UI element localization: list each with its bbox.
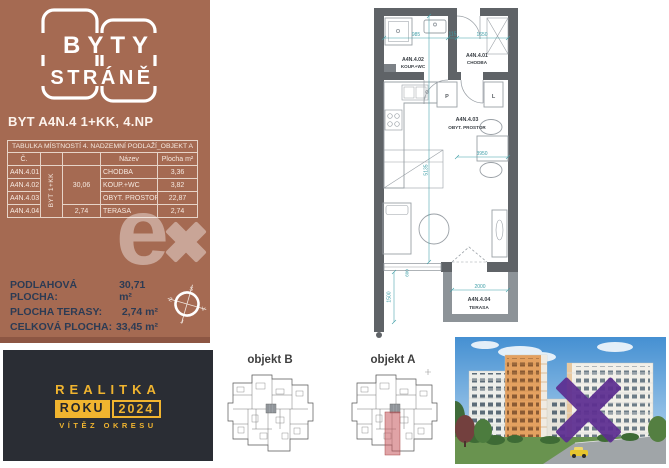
shower [385,18,412,45]
bathroom-door [424,80,448,104]
dim-1650: 1650 [476,32,487,38]
room-obytny-name: OBYT. PROSTOR [448,125,486,130]
stove [385,110,402,130]
logo-text-top: BYTY [63,32,155,59]
register-mark [425,369,431,375]
badge-line1: REALITKA [55,382,161,397]
room-terasa-id: A4N.4.04 [468,297,491,303]
room-chodba-id: A4N.4.01 [466,53,488,59]
objekt-a-label: objekt A [358,354,428,366]
badge-year: 2024 [112,400,162,418]
hall-closet [487,18,508,54]
objekt-b-plan [228,375,313,451]
highlighted-unit [385,412,400,455]
room-table-caption: TABULKA MÍSTNOSTÍ 4. NADZEMNÍ PODLAŽÍ_OB… [8,141,198,153]
wardrobe [492,210,507,257]
info-panel: BYTY STRÁNĚ BYT A4N.4 1+KK, 4.NP TABULKA… [0,0,210,343]
bed [383,203,411,254]
room-obytny-id: A4N.4.03 [456,117,479,123]
col-header-number: Č. [8,153,41,166]
realitka-roku-badge: REALITKA ROKU 2024 VÍTĚZ OKRESU [3,350,213,461]
byty-strane-logo: BYTY STRÁNĚ [36,5,166,107]
room-terasa-name: TERASA [469,305,489,311]
shaft [384,64,396,72]
chair [480,163,502,178]
apartment-title: BYT A4N.4 1+KK, 4.NP [8,114,153,129]
dim-115: 115 [449,32,457,38]
dim-2000: 2000 [474,284,485,290]
dim-5135: 5135 [424,164,430,175]
washbasin [424,20,446,33]
unit-label: BYT 1+KK [48,173,55,207]
dim-1500: 1500 [387,291,393,302]
washer-label: P [445,94,449,100]
badge-line2: ROKU 2024 [55,400,162,418]
dim-3950: 3950 [476,151,487,157]
logo-text-bottom: STRÁNĚ [50,65,153,89]
summary-total: CELKOVÁ PLOCHA: 33,45 m² [10,321,158,333]
col-header-area: Plocha m² [158,153,198,166]
hall-door [461,80,483,103]
watermark-x-icon [165,221,207,263]
terrace-door [452,247,487,262]
fridge-label: L [492,94,496,100]
building-thumbnails [225,368,447,465]
dim-985: 985 [412,32,421,38]
building-render [455,337,666,464]
watermark-p: p [206,196,210,285]
panel-shadow-edge [0,337,210,343]
room-chodba-name: CHODBA [467,60,488,65]
compass-south: J [180,319,185,325]
badge-roku: ROKU [55,400,110,418]
objekt-b-label: objekt B [235,354,305,366]
floor-plan: 985 115 1650 3950 5135 600 2000 1500 A4N… [360,0,540,345]
badge-line3: VÍTĚZ OKRESU [59,421,156,430]
table-row: A4N.4.02 KOUP.+WC 3,82 [8,179,198,192]
room-koupwc-id: A4N.4.02 [402,57,424,63]
kitchen-island [384,150,443,188]
room-koupwc-name: KOUP.+WC [401,64,426,69]
col-header-name: Název [101,153,158,166]
exp-watermark: e p [94,196,210,311]
watermark-e: e [116,196,169,285]
dim-600: 600 [405,269,410,277]
round-table [419,214,449,244]
table-row: A4N.4.01 BYT 1+KK 30,06 CHODBA 3,36 [8,166,198,179]
window [384,264,441,271]
flyer-page: BYTY STRÁNĚ BYT A4N.4 1+KK, 4.NP TABULKA… [0,0,669,468]
